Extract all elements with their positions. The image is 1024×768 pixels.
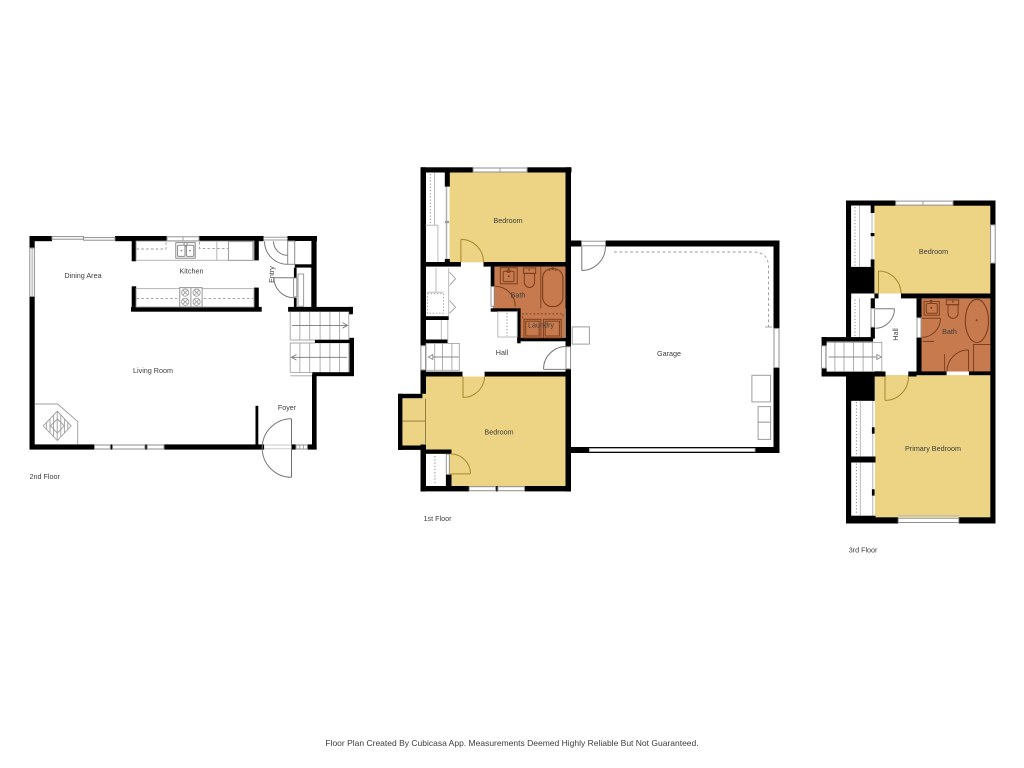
svg-text:Bedroom: Bedroom [484, 428, 513, 437]
svg-text:Dining Area: Dining Area [64, 271, 101, 280]
svg-text:Primary Bedroom: Primary Bedroom [905, 444, 961, 453]
svg-text:Bedroom: Bedroom [919, 247, 948, 256]
svg-text:Garage: Garage [657, 349, 681, 358]
svg-text:Hall: Hall [496, 348, 509, 357]
svg-text:Floor Plan Created By Cubicasa: Floor Plan Created By Cubicasa App. Meas… [325, 738, 698, 748]
svg-text:Entry: Entry [267, 266, 276, 283]
svg-text:Kitchen: Kitchen [180, 267, 204, 276]
svg-text:Foyer: Foyer [278, 403, 297, 412]
svg-text:Bath: Bath [511, 290, 526, 299]
svg-text:1st Floor: 1st Floor [424, 514, 453, 523]
svg-text:Hall: Hall [891, 328, 900, 341]
svg-text:Living Room: Living Room [133, 366, 173, 375]
svg-text:Laundry: Laundry [528, 320, 554, 329]
svg-text:3rd Floor: 3rd Floor [849, 546, 878, 555]
svg-text:Bath: Bath [942, 327, 957, 336]
svg-text:Bedroom: Bedroom [493, 216, 522, 225]
svg-text:2nd Floor: 2nd Floor [30, 472, 61, 481]
